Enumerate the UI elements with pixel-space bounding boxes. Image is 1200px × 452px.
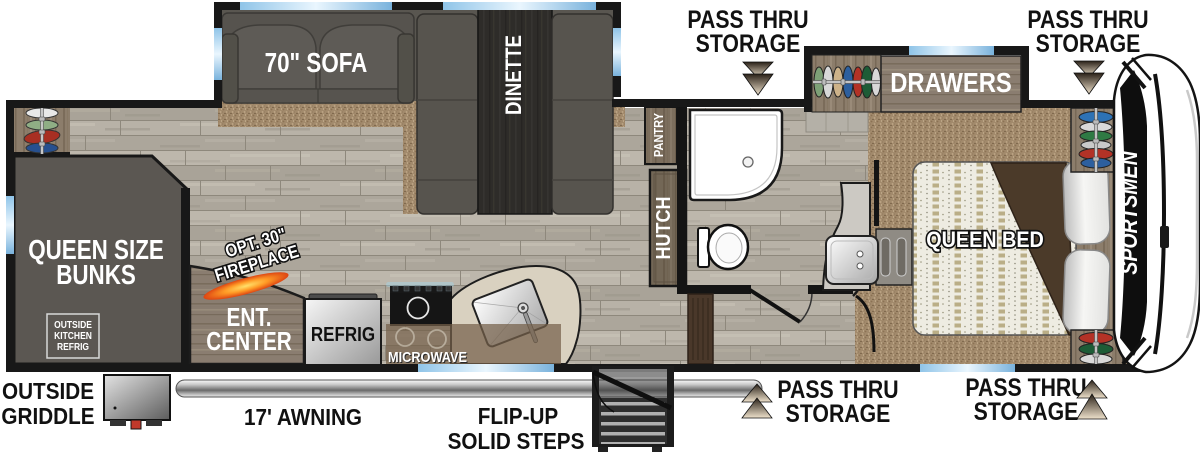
svg-text:17' AWNING: 17' AWNING <box>244 404 362 430</box>
svg-text:BUNKS: BUNKS <box>56 260 136 291</box>
svg-text:CENTER: CENTER <box>206 327 291 356</box>
svg-text:SPORTSMEN: SPORTSMEN <box>1117 151 1143 275</box>
svg-text:STORAGE: STORAGE <box>974 397 1079 425</box>
svg-text:QUEEN BED: QUEEN BED <box>926 228 1044 252</box>
svg-text:OUTSIDE: OUTSIDE <box>54 319 92 330</box>
svg-text:FLIP-UP: FLIP-UP <box>478 403 558 429</box>
svg-text:STORAGE: STORAGE <box>1036 29 1141 57</box>
svg-text:OUTSIDE: OUTSIDE <box>2 378 94 404</box>
svg-text:STORAGE: STORAGE <box>696 29 801 57</box>
svg-text:REFRIG: REFRIG <box>311 323 375 346</box>
svg-text:REFRIG: REFRIG <box>57 341 89 352</box>
svg-text:MICROWAVE: MICROWAVE <box>388 348 467 365</box>
svg-text:PANTRY: PANTRY <box>651 113 666 157</box>
svg-text:DRAWERS: DRAWERS <box>890 66 1012 98</box>
svg-text:STORAGE: STORAGE <box>786 399 891 427</box>
svg-text:SOLID STEPS: SOLID STEPS <box>448 428 585 452</box>
svg-text:HUTCH: HUTCH <box>653 197 675 260</box>
svg-text:KITCHEN: KITCHEN <box>54 330 92 341</box>
svg-text:GRIDDLE: GRIDDLE <box>1 403 94 429</box>
svg-text:70" SOFA: 70" SOFA <box>265 48 368 79</box>
svg-text:DINETTE: DINETTE <box>503 35 527 115</box>
